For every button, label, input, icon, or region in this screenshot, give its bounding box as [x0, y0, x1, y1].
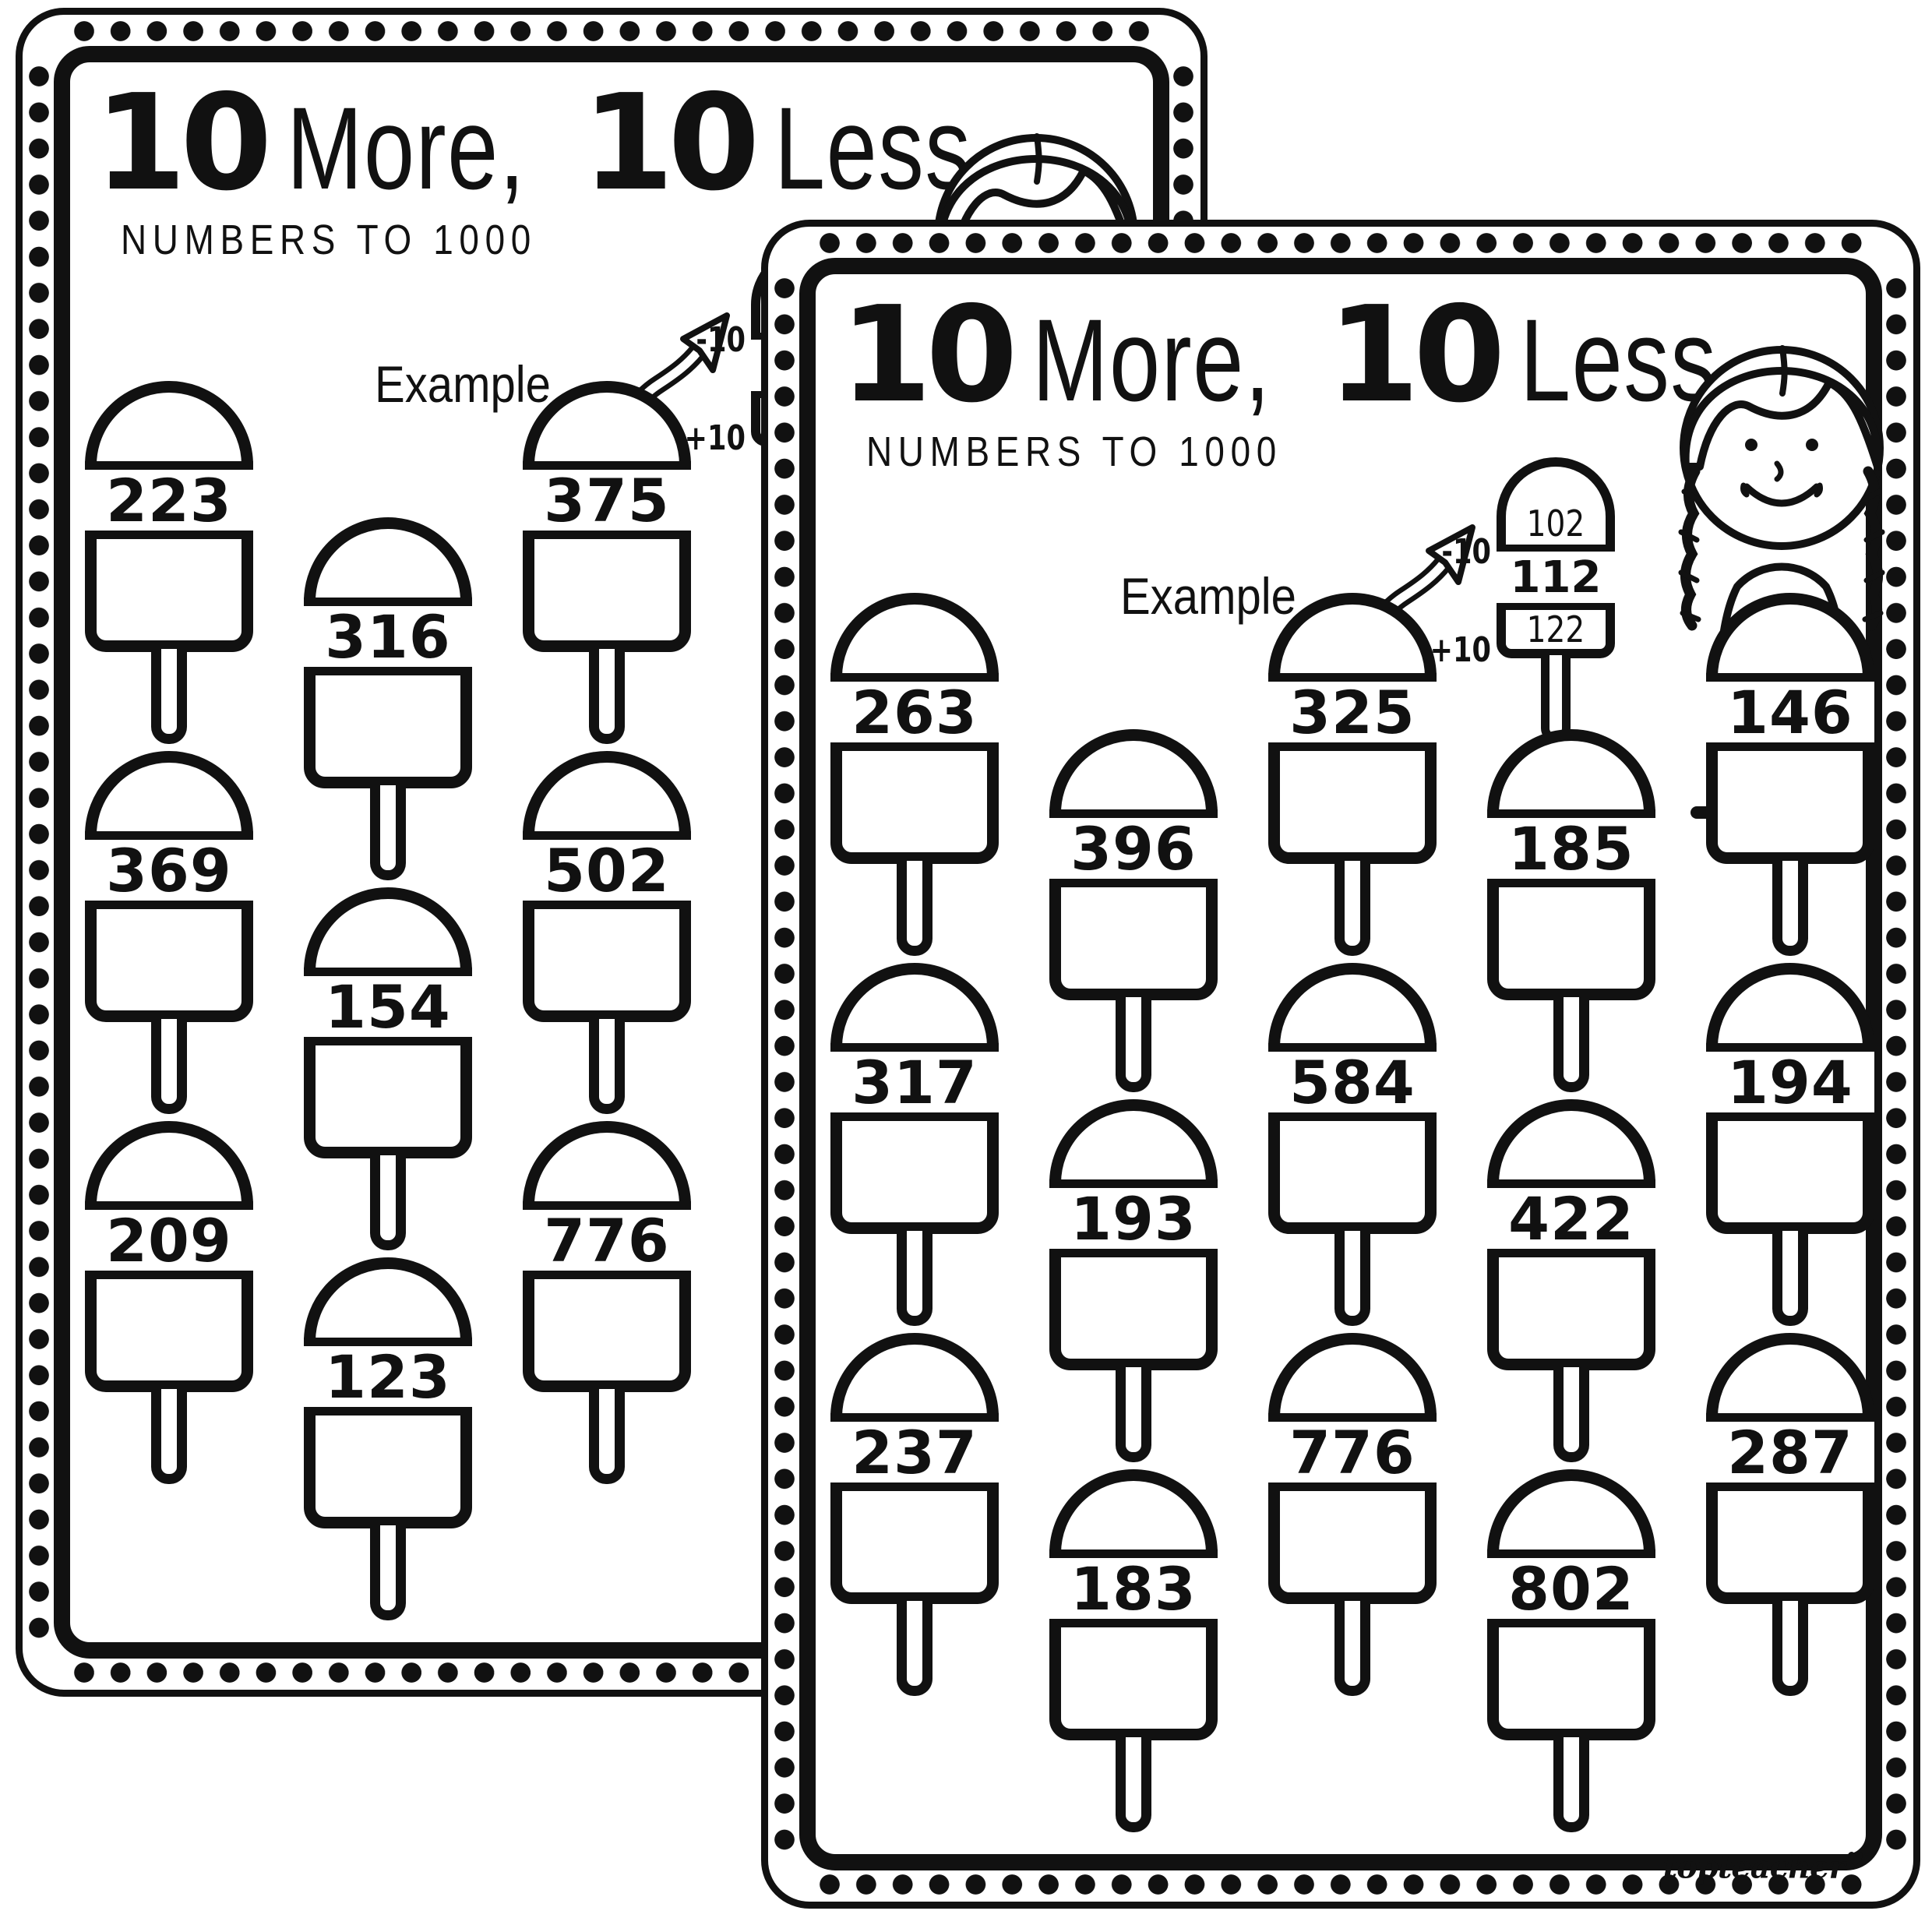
example-number: 112: [1511, 552, 1602, 603]
popsicle-number: 369: [106, 836, 232, 905]
page-subtitle: NUMBERS TO 1000: [866, 428, 1282, 476]
popsicle: 287: [1706, 1333, 1874, 1604]
popsicle: 223: [85, 381, 253, 652]
minus-ten-label: -10: [683, 320, 746, 360]
popsicle-number: 237: [851, 1418, 978, 1487]
title-number: 10: [840, 289, 1012, 421]
brand-logo: topteacher♥: [1663, 1849, 1863, 1885]
popsicle-stick: [151, 649, 187, 744]
popsicle-number: 223: [106, 466, 232, 535]
popsicle-stick: [897, 1601, 933, 1696]
popsicle: 317: [830, 963, 999, 1234]
popsicle-number: 263: [851, 678, 978, 747]
page-title: 10 More, 10 Less.: [840, 289, 1758, 421]
title-word-more: More,: [1032, 301, 1271, 418]
popsicle-stick: [1334, 861, 1370, 956]
popsicle-number: 776: [544, 1206, 670, 1275]
popsicle: 375: [523, 381, 691, 652]
popsicle-number: 146: [1727, 678, 1853, 747]
popsicle: 316: [304, 517, 472, 788]
popsicle: 194: [1706, 963, 1874, 1234]
popsicle: 185: [1487, 729, 1655, 1000]
popsicle-number: 183: [1070, 1554, 1197, 1624]
popsicle-number: 584: [1289, 1048, 1416, 1117]
popsicle-stick: [1334, 1231, 1370, 1326]
popsicle-number: 802: [1508, 1554, 1634, 1624]
dotted-border-top: [812, 233, 1870, 254]
popsicle-stick: [897, 861, 933, 956]
popsicle: 396: [1049, 729, 1218, 1000]
popsicle-stick: [589, 1019, 625, 1114]
example-ten-more: 122: [1527, 608, 1585, 650]
popsicle-stick: [370, 785, 406, 880]
popsicle-stick: [1772, 1601, 1808, 1696]
popsicle-number: 776: [1289, 1418, 1416, 1487]
popsicle: 776: [523, 1121, 691, 1392]
popsicle-number: 422: [1508, 1184, 1634, 1253]
popsicle-number: 185: [1508, 814, 1634, 883]
popsicle-number: 193: [1070, 1184, 1197, 1253]
dotted-border-left: [29, 58, 50, 1646]
popsicle-stick: [1553, 1737, 1589, 1832]
popsicle-number: 317: [851, 1048, 978, 1117]
popsicle: 146: [1706, 593, 1874, 864]
brand-name: topteacher: [1663, 1849, 1845, 1885]
popsicle-stick: [370, 1525, 406, 1620]
plus-ten-label: +10: [1429, 630, 1491, 670]
popsicle-number: 209: [106, 1206, 232, 1275]
popsicle: 183: [1049, 1469, 1218, 1740]
dotted-border-top: [66, 21, 1157, 42]
page-subtitle: NUMBERS TO 1000: [121, 216, 537, 264]
popsicle-number: 316: [325, 602, 451, 672]
popsicle-stick: [370, 1155, 406, 1250]
popsicle-number: 325: [1289, 678, 1416, 747]
popsicle-stick: [1116, 1367, 1151, 1462]
example-popsicle: 102 112 122: [1497, 457, 1615, 658]
plus-ten-label: +10: [683, 418, 746, 458]
popsicle: 209: [85, 1121, 253, 1392]
popsicle-number: 287: [1727, 1418, 1853, 1487]
popsicle: 237: [830, 1333, 999, 1604]
popsicle: 776: [1268, 1333, 1437, 1604]
popsicle-stick: [1772, 861, 1808, 956]
title-word-more: More,: [287, 90, 526, 206]
popsicle-number: 154: [325, 972, 451, 1042]
popsicle: 263: [830, 593, 999, 864]
popsicle-stick: [1553, 997, 1589, 1092]
minus-ten-label: -10: [1429, 532, 1491, 572]
popsicle: 802: [1487, 1469, 1655, 1740]
popsicle-stick: [1116, 1737, 1151, 1832]
popsicle-stick: [151, 1389, 187, 1484]
popsicle: 422: [1487, 1099, 1655, 1370]
popsicle: 325: [1268, 593, 1437, 864]
popsicle-number: 396: [1070, 814, 1197, 883]
popsicle-stick: [589, 649, 625, 744]
worksheet-scene: 10 More, 10 Less. NUMBERS TO 1000 Exampl…: [0, 0, 1932, 1932]
heart-icon: ♥: [1846, 1849, 1863, 1872]
popsicle-number: 123: [325, 1342, 451, 1412]
title-number: 10: [1327, 289, 1500, 421]
popsicle-stick: [1116, 997, 1151, 1092]
popsicle-stick: [1553, 1367, 1589, 1462]
popsicle: 123: [304, 1257, 472, 1528]
popsicle: 369: [85, 751, 253, 1022]
popsicle-stick: [897, 1231, 933, 1326]
title-number: 10: [582, 77, 754, 210]
popsicle-stick: [151, 1019, 187, 1114]
page-title: 10 More, 10 Less.: [94, 77, 1013, 210]
title-number: 10: [94, 77, 266, 210]
worksheet-page-front: 10 More, 10 Less. NUMBERS TO 1000 Exampl…: [761, 220, 1920, 1909]
popsicle-stick: [1334, 1601, 1370, 1696]
popsicle-stick: [589, 1389, 625, 1484]
popsicle: 154: [304, 887, 472, 1158]
example-ten-less: 102: [1527, 502, 1585, 545]
example-popsicle-body: 102 112 122: [1497, 457, 1615, 658]
popsicle: 584: [1268, 963, 1437, 1234]
popsicle-stick: [1772, 1231, 1808, 1326]
popsicle-number: 502: [544, 836, 670, 905]
popsicle: 502: [523, 751, 691, 1022]
popsicle-number: 194: [1727, 1048, 1853, 1117]
popsicle: 193: [1049, 1099, 1218, 1370]
popsicle-number: 375: [544, 466, 670, 535]
dotted-border-left: [774, 270, 795, 1858]
